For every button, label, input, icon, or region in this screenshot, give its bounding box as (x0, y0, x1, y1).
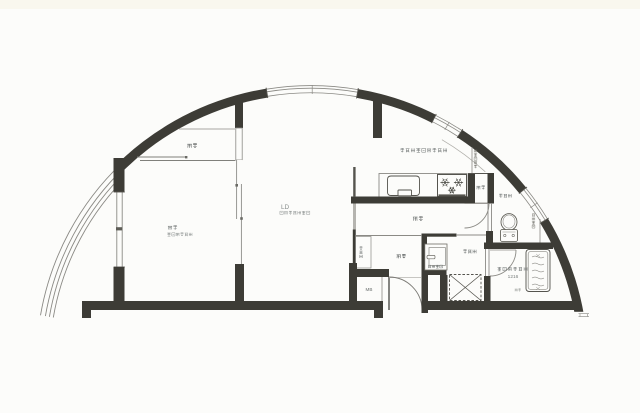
svg-text:1216: 1216 (508, 274, 519, 280)
svg-text:MB: MB (366, 287, 373, 292)
svg-text:LD: LD (281, 204, 290, 211)
